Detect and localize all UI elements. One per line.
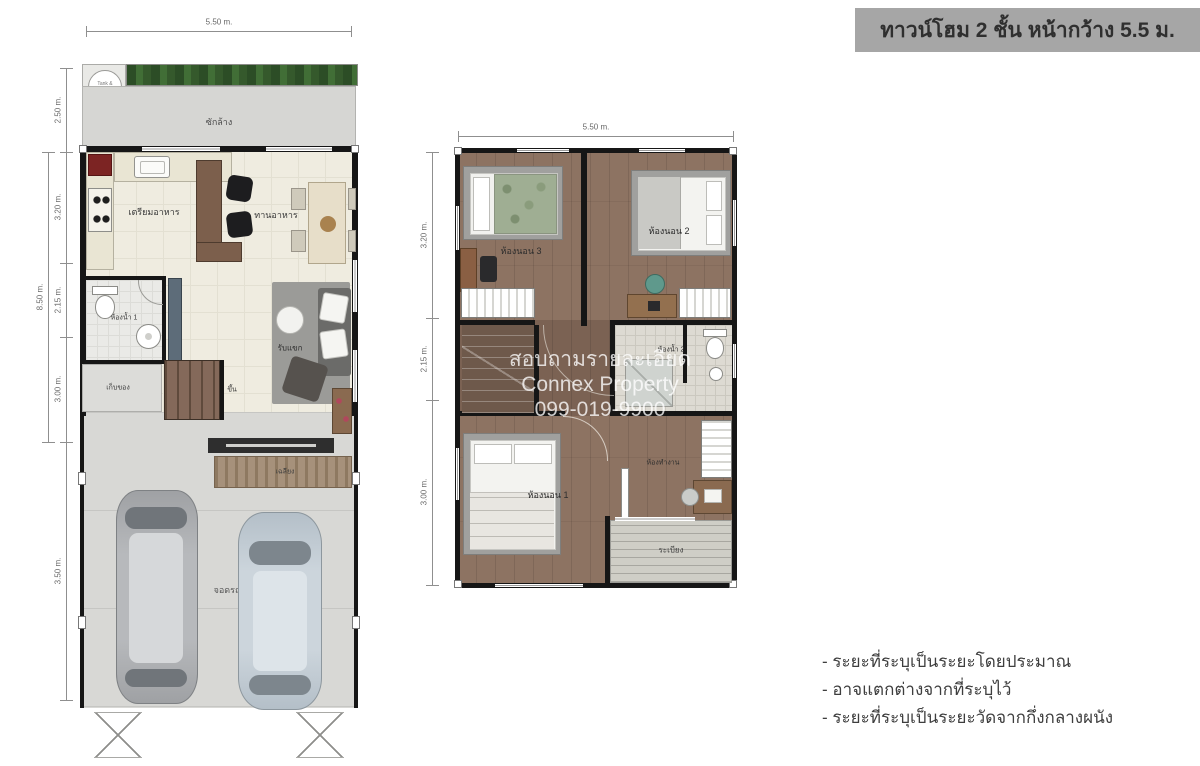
gate-post-hatch (296, 712, 344, 758)
bath1-label: ห้องน้ำ 1 (111, 313, 138, 324)
sofa (318, 288, 351, 376)
watermark-line1: สอบถามรายละเอียด (509, 348, 691, 373)
bed-double-2 (631, 170, 731, 256)
f2-window-left-2 (456, 448, 459, 500)
tv-console (208, 438, 334, 453)
suv-windshield (125, 507, 187, 529)
f1-window-right-2 (353, 350, 357, 402)
bedroom2-label: ห้องนอน 2 (649, 224, 690, 238)
f2-window-right-1 (733, 200, 736, 246)
porch-label: เฉลียง (276, 467, 295, 478)
gate-post-hatch (94, 712, 142, 758)
f2-dim-seg1: 3.20 m. (420, 222, 429, 249)
column-post (351, 145, 359, 153)
column-post (352, 472, 360, 485)
stairs-up-label: ขึ้น (227, 385, 237, 396)
toilet2-bowl (706, 337, 724, 359)
wardrobe-bedroom2 (679, 288, 731, 318)
f1-dim-seg1: 3.20 m. (54, 194, 63, 221)
toilet2-tank (703, 329, 727, 337)
f2-wall-top (455, 148, 737, 153)
kitchen-label: เตรียมอาหาร (128, 205, 179, 219)
note-line1: - ระยะที่ระบุเป็นระยะโดยประมาณ (822, 648, 1113, 676)
toilet (92, 286, 118, 295)
f2-dim-top-line (458, 136, 734, 137)
disclaimer-notes: - ระยะที่ระบุเป็นระยะโดยประมาณ - อาจแตกต… (822, 648, 1113, 732)
f2-window-left-1 (456, 206, 459, 250)
basin (136, 324, 161, 349)
f1-dim-total-line (48, 152, 49, 442)
f1-window-top-1 (142, 147, 220, 151)
wardrobe-bedroom3 (461, 288, 535, 318)
watermark: สอบถามรายละเอียด Connex Property 099-019… (509, 348, 691, 422)
garage-wall-left (80, 416, 84, 708)
bedroom-divider-wall (581, 148, 587, 326)
suv-rear-window (125, 669, 187, 687)
laundry-label: ซักล้าง (206, 115, 233, 129)
bath1-door-arc (138, 280, 163, 305)
basin2 (709, 367, 723, 381)
sedan-roof (253, 571, 307, 671)
dresser-bedroom3 (460, 248, 477, 292)
stair-rail (220, 360, 224, 420)
suv-roof (129, 533, 183, 663)
f1-dim-top-line (86, 31, 352, 32)
mirror-board (621, 468, 629, 522)
bed-single (463, 166, 563, 240)
column-post (454, 580, 462, 588)
console-plant (332, 388, 352, 434)
workroom-label: ห้องทำงาน (647, 458, 680, 469)
column-post (78, 616, 86, 629)
watermark-line2: Connex Property (509, 373, 691, 398)
bedroom1-label: ห้องนอน 1 (528, 488, 569, 502)
living-label: รับแขก (278, 342, 303, 355)
bar-chair (226, 211, 254, 239)
f1-dim-seg3: 3.00 m. (54, 376, 63, 403)
dining-table (308, 182, 346, 264)
bar-chair (225, 174, 254, 203)
car-suv (116, 490, 198, 704)
garage-wall-right (354, 416, 358, 708)
dining-label: ทานอาหาร (254, 208, 297, 222)
watermark-line3: 099-019-9900 (509, 397, 691, 422)
desk-bedroom2 (627, 294, 677, 318)
f2-dim-left-line (432, 152, 433, 585)
sedan-rear-window (249, 675, 311, 695)
f2-window-right-2 (733, 344, 736, 378)
chair-bedroom3 (480, 256, 497, 282)
f2-dim-top-label: 5.50 m. (583, 123, 610, 132)
dining-chair (291, 188, 306, 210)
wardrobe-bedroom1 (701, 420, 732, 478)
f1-dim-seg2: 2.15 m. (54, 287, 63, 314)
coffee-table-round (276, 306, 304, 334)
f1-window-right-1 (353, 260, 357, 312)
title-banner-text: ทาวน์โฮม 2 ชั้น หน้ากว้าง 5.5 ม. (880, 14, 1175, 47)
title-banner: ทาวน์โฮม 2 ชั้น หน้ากว้าง 5.5 ม. (855, 8, 1200, 52)
note-line3: - ระยะที่ระบุเป็นระยะวัดจากกึ่งกลางผนัง (822, 704, 1113, 732)
first-floor-plan: Tank & Pump ซักล้าง (80, 60, 358, 710)
f2-dim-seg3: 3.00 m. (420, 479, 429, 506)
note-line2: - อาจแตกต่างจากที่ระบุไว้ (822, 676, 1113, 704)
f1-dim-garage: 3.50 m. (54, 558, 63, 585)
f1-dim-left-line (66, 68, 67, 700)
parking-label: จอดรถ (214, 583, 241, 597)
kitchen-island-foot (196, 242, 242, 262)
chair-bedroom1 (681, 488, 699, 506)
dining-chair (348, 230, 356, 252)
stove (88, 188, 112, 232)
f1-dim-total: 8.50 m. (36, 284, 45, 311)
f2-window-bottom (495, 584, 583, 587)
column-post (78, 472, 86, 485)
column-post (729, 147, 737, 155)
tall-cabinet (168, 278, 182, 362)
stairs-floor1 (164, 360, 220, 420)
balcony-sliding-door (615, 517, 695, 521)
column-post (352, 616, 360, 629)
chair-bedroom2 (645, 274, 665, 294)
bedroom3-label: ห้องนอน 3 (501, 244, 542, 258)
floorplan-image: ทาวน์โฮม 2 ชั้น หน้ากว้าง 5.5 ม. 5.50 m.… (0, 0, 1200, 766)
car-sedan (238, 512, 322, 710)
storage-label: เก็บของ (106, 383, 129, 394)
sedan-windshield (249, 541, 311, 565)
f2-window-top-1 (517, 149, 569, 152)
dining-chair (348, 188, 356, 210)
hedge-strip (126, 64, 358, 86)
column-post (454, 147, 462, 155)
balcony-label: ระเบียง (659, 544, 684, 557)
f1-dim-top-label: 5.50 m. (206, 18, 233, 27)
dining-chair (291, 230, 306, 252)
f1-dim-laundry: 2.50 m. (54, 97, 63, 124)
kitchen-sink (134, 156, 170, 178)
red-appliance (88, 154, 112, 176)
balcony-wall-left (605, 516, 610, 586)
f2-window-top-2 (639, 149, 685, 152)
f1-window-top-2 (266, 147, 332, 151)
f2-dim-seg2: 2.15 m. (420, 346, 429, 373)
